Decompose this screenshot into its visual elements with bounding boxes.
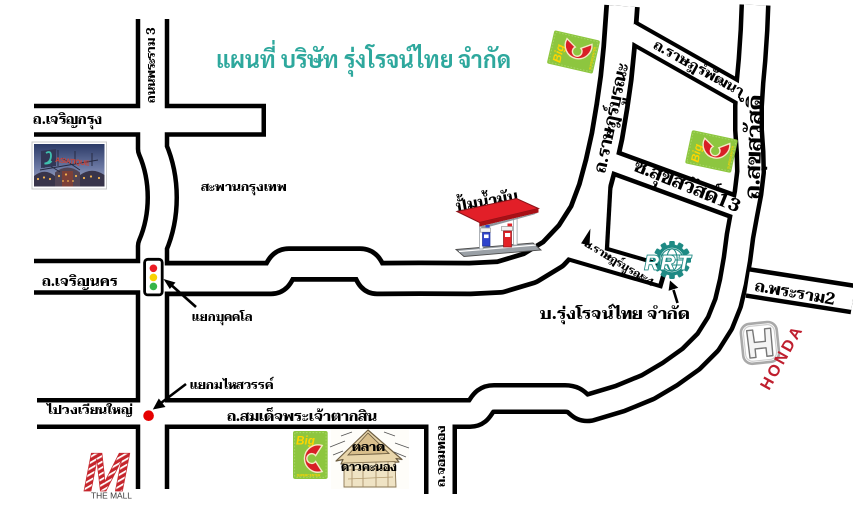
svg-text:T: T <box>678 253 692 275</box>
svg-text:R: R <box>645 253 660 275</box>
svg-text:THE MALL: THE MALL <box>91 491 132 501</box>
svg-text:R: R <box>661 253 676 275</box>
